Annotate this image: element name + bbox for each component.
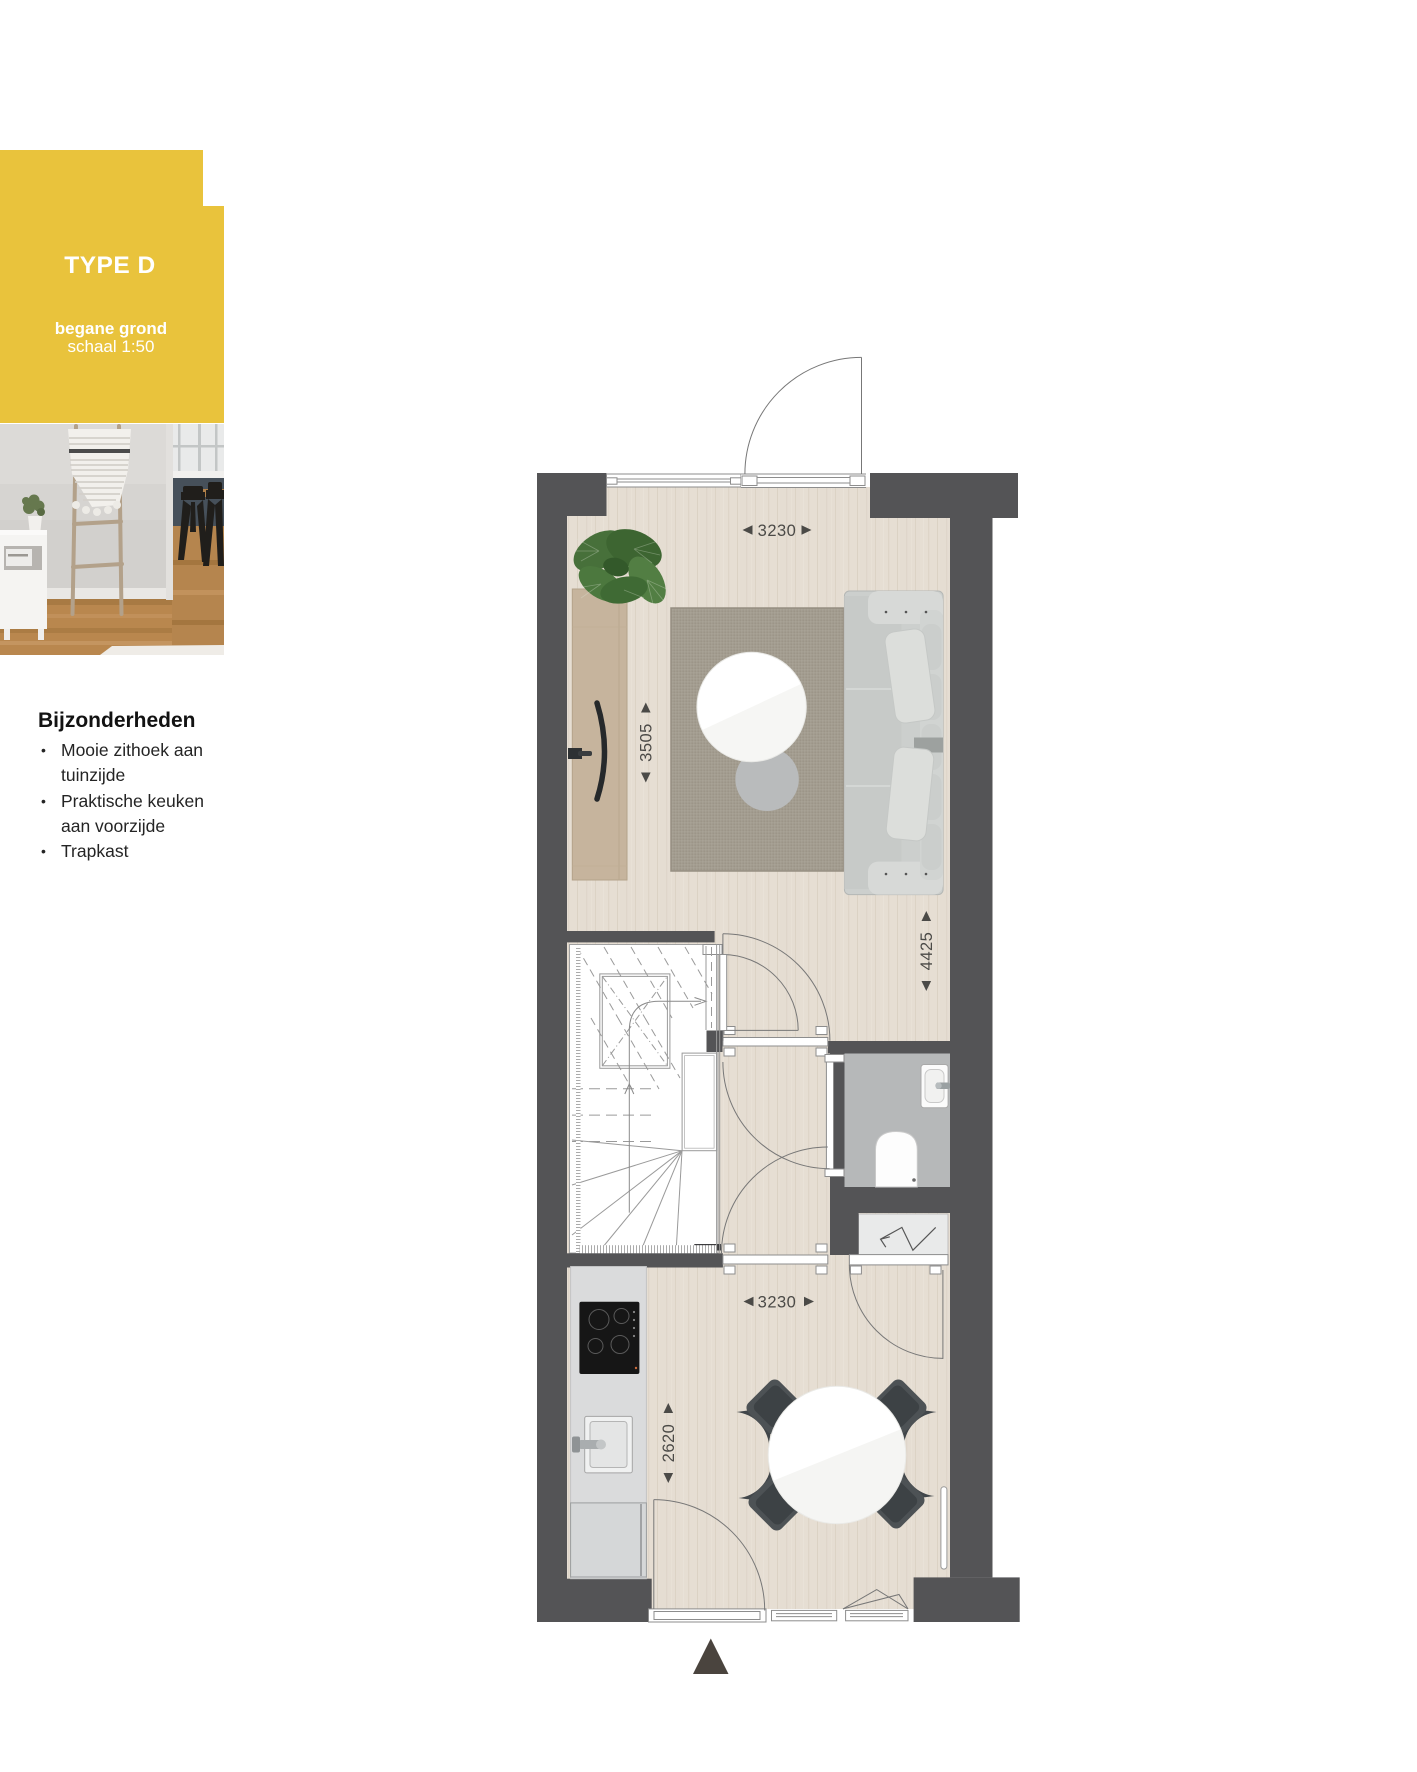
svg-text:2620: 2620 bbox=[660, 1424, 678, 1463]
svg-text:3230: 3230 bbox=[758, 1294, 797, 1312]
svg-text:4425: 4425 bbox=[918, 932, 936, 971]
svg-text:3230: 3230 bbox=[758, 522, 797, 540]
svg-text:3505: 3505 bbox=[638, 723, 656, 762]
